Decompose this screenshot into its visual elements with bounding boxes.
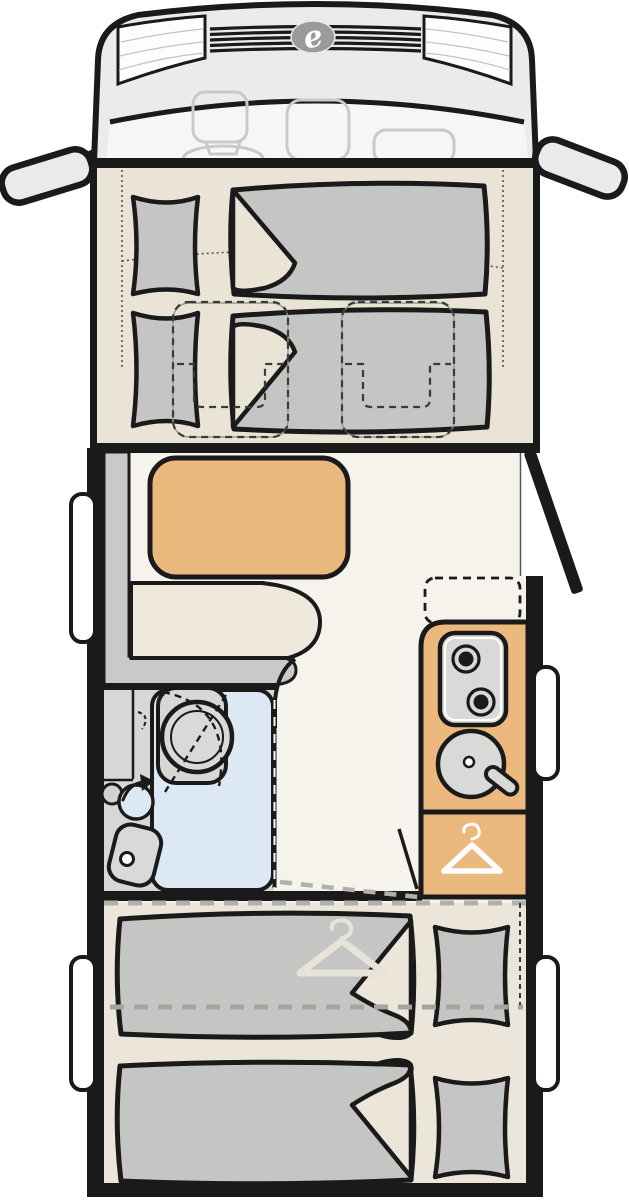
kitchen-section xyxy=(421,578,528,897)
wall-right-front xyxy=(533,158,540,452)
mirror-left-icon xyxy=(0,145,96,206)
burner-icon xyxy=(474,695,489,710)
bench-seat xyxy=(131,583,320,658)
window-right-kitchen xyxy=(534,667,558,779)
motorhome-floorplan: e xyxy=(0,0,629,1200)
cab: e xyxy=(66,4,562,174)
front-bed-lower-pillow xyxy=(133,313,198,426)
window-left-lounge xyxy=(71,494,95,642)
sink-drain xyxy=(464,757,474,767)
rear-bed-top-pillow xyxy=(435,927,508,1025)
front-bed-upper-pillow xyxy=(133,197,198,294)
mirror-right-icon xyxy=(531,135,629,202)
window-left-rear xyxy=(71,957,95,1090)
wall-left-front xyxy=(90,158,97,452)
rear-bed-bottom-pillow xyxy=(435,1078,508,1177)
mirror-left-glass xyxy=(0,145,96,206)
mirror-right-glass xyxy=(531,135,629,202)
burner-icon xyxy=(459,652,474,667)
window-right-rear xyxy=(534,957,558,1090)
wall-top xyxy=(90,158,540,168)
toilet-button xyxy=(121,853,134,866)
toilet-swivel-base xyxy=(119,785,153,819)
dinette-table xyxy=(150,458,348,577)
floorplan-page: e xyxy=(0,0,629,1200)
wall-mid-divider xyxy=(90,443,540,453)
